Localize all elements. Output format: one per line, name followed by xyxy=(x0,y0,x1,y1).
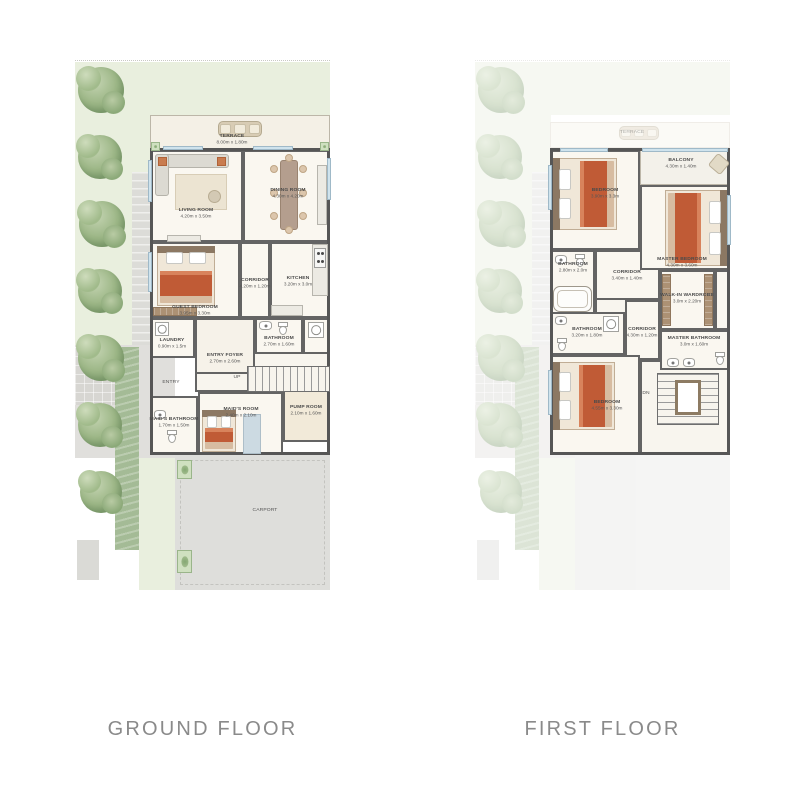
label-kitchen: KITCHEN3.20m x 3.0m xyxy=(257,275,340,288)
room-dimensions: 1.70m x 1.50m xyxy=(133,422,216,428)
room-dimensions: 8.00m x 1.80m xyxy=(191,139,274,145)
room-dimensions: 4.55m x 3.30m xyxy=(566,405,649,411)
label-bedroom: BEDROOM4.55m x 3.30m xyxy=(566,399,649,412)
room-dimensions: 0.90m x 1.5m xyxy=(131,343,214,349)
first-floor-caption: FIRST FLOOR xyxy=(475,718,730,741)
label-entry-foyer: ENTRY FOYER2.70m x 2.60m xyxy=(184,352,267,365)
room-dimensions: 3.40m x 1.40m xyxy=(586,275,669,281)
label-terrace: TERRACE8.00m x 1.80m xyxy=(191,133,274,146)
room-dimensions: 4.30m x 4.20m xyxy=(247,193,330,199)
room-name: DN xyxy=(605,390,688,396)
room-dimensions: 3.90m x 3.3m xyxy=(564,193,647,199)
room-dimensions: 3.95m x 3.30m xyxy=(154,310,237,316)
label-pump-room: PUMP ROOM2.10m x 1.60m xyxy=(265,404,348,417)
label-walk-in-wardrobe: WALK-IN WARDROBE3.0m x 2.20m xyxy=(646,292,729,305)
label-master-bathroom: MASTER BATHROOM3.0m x 1.60m xyxy=(653,335,736,348)
label-laundry: LAUNDRY0.90m x 1.5m xyxy=(131,337,214,350)
floor-plan-page: { "page": {"bg": "#ffffff"}, "floors": [… xyxy=(0,0,800,800)
label-bathroom: BATHROOM2.70m x 1.60m xyxy=(238,335,321,348)
label-corridor: CORRIDOR3.40m x 1.40m xyxy=(586,269,669,282)
ground-floor-plan: TERRACE8.00m x 1.80mLAUNDRY0.90m x 1.5mE… xyxy=(75,60,330,590)
room-dimensions: 2.70m x 1.60m xyxy=(238,341,321,347)
room-dimensions: 3.0m x 1.60m xyxy=(653,341,736,347)
label-living-room: LIVING ROOM4.20m x 3.50m xyxy=(155,207,238,220)
label-balcony: BALCONY4.30m x 1.40m xyxy=(640,157,723,170)
label-guest-bedroom: GUEST BEDROOM3.95m x 3.30m xyxy=(154,304,237,317)
label-dining-room: DINING ROOM4.30m x 4.20m xyxy=(247,187,330,200)
room-dimensions: 4.20m x 3.50m xyxy=(155,213,238,219)
label-bedroom: BEDROOM3.90m x 3.3m xyxy=(564,187,647,200)
label-up: UP xyxy=(196,374,279,380)
room-dimensions: 4.30m x 1.40m xyxy=(640,163,723,169)
room-dimensions: 2.10m x 1.60m xyxy=(265,410,348,416)
room-dimensions: 3.20m x 3.0m xyxy=(257,281,340,287)
label-master-bedroom: MASTER BEDROOM4.30m x 3.60m xyxy=(641,256,724,269)
label-terrace: TERRACE xyxy=(591,129,674,135)
room-dimensions: 2.70m x 2.60m xyxy=(184,358,267,364)
first-floor-plan: BATHROOM2.80m x 2.0mCORRIDOR3.40m x 1.40… xyxy=(475,60,730,590)
room-name: CARPORT xyxy=(224,507,307,513)
room-name: TERRACE xyxy=(591,129,674,135)
ground-floor-caption: GROUND FLOOR xyxy=(75,718,330,741)
room-name: UP xyxy=(196,374,279,380)
label-carport: CARPORT xyxy=(224,507,307,513)
labels: TERRACE8.00m x 1.80mLAUNDRY0.90m x 1.5mE… xyxy=(75,60,330,590)
labels: BATHROOM2.80m x 2.0mCORRIDOR3.40m x 1.40… xyxy=(475,60,730,590)
label-dn: DN xyxy=(605,390,688,396)
room-dimensions: 3.0m x 2.20m xyxy=(646,298,729,304)
room-dimensions: 4.30m x 3.60m xyxy=(641,262,724,268)
